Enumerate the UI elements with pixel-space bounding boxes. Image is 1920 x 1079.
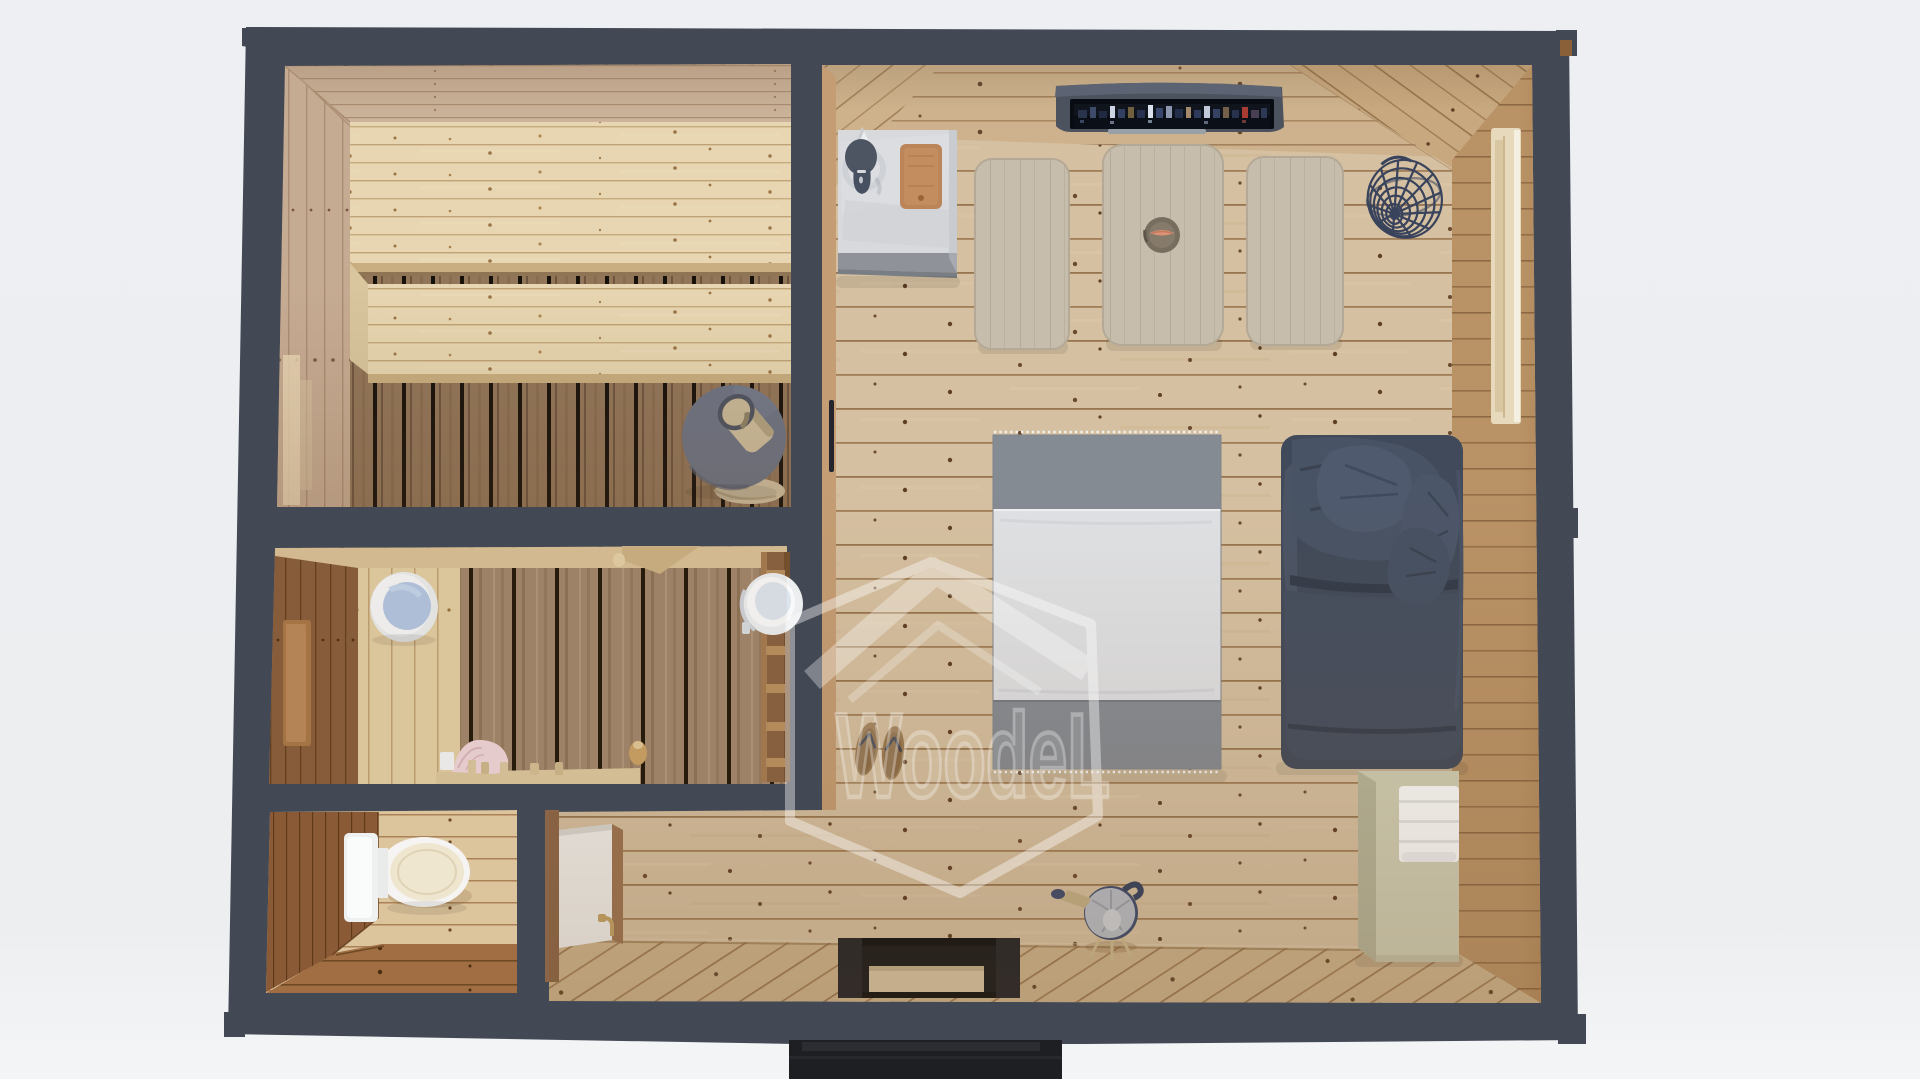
svg-text:WoodeL: WoodeL — [836, 689, 1110, 823]
